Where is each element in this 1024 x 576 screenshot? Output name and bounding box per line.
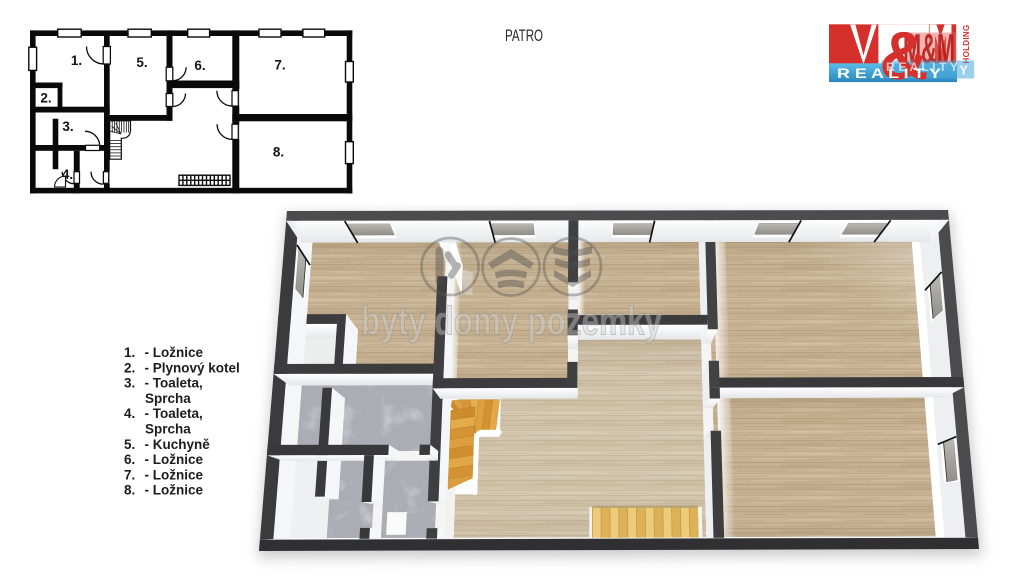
svg-text:5.: 5.	[136, 55, 147, 70]
svg-text:6.: 6.	[194, 58, 205, 73]
svg-text:Sprcha: Sprcha	[145, 422, 191, 437]
svg-text:1.: 1.	[71, 53, 82, 68]
svg-text:8.: 8.	[273, 145, 284, 160]
svg-text:Sprcha: Sprcha	[145, 391, 191, 406]
svg-text:PATRO: PATRO	[505, 27, 543, 45]
svg-text:Y: Y	[960, 64, 969, 78]
svg-text:&: &	[880, 18, 929, 94]
svg-text:byty domy pozemky: byty domy pozemky	[361, 300, 663, 344]
svg-text:®: ®	[970, 68, 974, 75]
svg-text:R E A L I T Y: R E A L I T Y	[837, 66, 941, 81]
svg-text:4.: 4.	[62, 167, 73, 182]
svg-text:HOLDING: HOLDING	[962, 25, 971, 64]
svg-text:3.: 3.	[62, 119, 73, 134]
svg-text:2.: 2.	[40, 91, 51, 106]
svg-text:7.: 7.	[274, 58, 285, 73]
